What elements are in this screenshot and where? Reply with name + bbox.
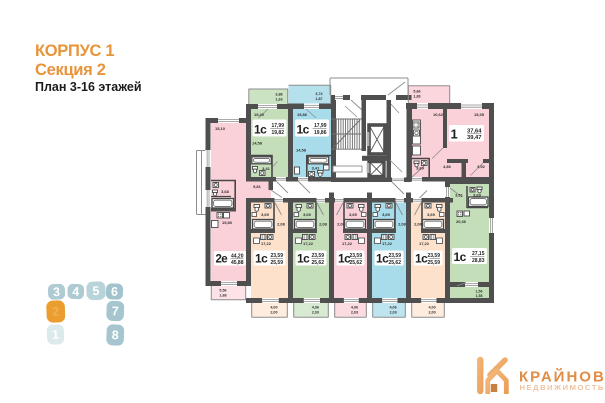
svg-text:3,69: 3,69 <box>416 166 425 171</box>
svg-text:17,22: 17,22 <box>419 241 430 246</box>
svg-text:3: 3 <box>53 285 61 299</box>
svg-text:3,74: 3,74 <box>315 92 323 96</box>
svg-text:2,08: 2,08 <box>398 222 407 227</box>
svg-text:17,22: 17,22 <box>382 241 393 246</box>
svg-text:2,03: 2,03 <box>312 310 319 314</box>
svg-text:План 3-16 этажей: План 3-16 этажей <box>35 80 142 94</box>
svg-text:25,59: 25,59 <box>427 260 440 266</box>
svg-text:15,10: 15,10 <box>215 126 226 131</box>
svg-text:1: 1 <box>451 127 458 142</box>
svg-text:8: 8 <box>112 328 119 342</box>
svg-text:14,58: 14,58 <box>252 141 263 146</box>
svg-text:19,86: 19,86 <box>297 112 308 117</box>
svg-text:Секция 2: Секция 2 <box>35 61 106 79</box>
svg-text:20,36: 20,36 <box>456 219 467 224</box>
svg-text:1с: 1с <box>254 123 267 137</box>
svg-text:3,69: 3,69 <box>382 212 391 217</box>
svg-text:1: 1 <box>52 328 59 342</box>
svg-text:44,20: 44,20 <box>231 253 244 259</box>
svg-text:3,41: 3,41 <box>312 166 321 171</box>
svg-text:1,63: 1,63 <box>275 97 282 101</box>
svg-text:5,56: 5,56 <box>219 289 226 293</box>
svg-text:5: 5 <box>92 284 99 298</box>
svg-text:19,80: 19,80 <box>222 220 233 225</box>
svg-text:4: 4 <box>72 285 79 299</box>
svg-text:19,86: 19,86 <box>314 130 327 136</box>
svg-text:5,66: 5,66 <box>413 90 420 94</box>
svg-text:КОРПУС 1: КОРПУС 1 <box>35 42 114 60</box>
svg-text:14,58: 14,58 <box>296 148 307 153</box>
svg-text:1,58: 1,58 <box>476 294 483 298</box>
svg-text:23,59: 23,59 <box>388 253 401 259</box>
svg-text:4,06: 4,06 <box>389 306 396 310</box>
svg-text:25,62: 25,62 <box>311 260 324 266</box>
svg-text:37,64: 37,64 <box>467 128 482 134</box>
svg-text:3,69: 3,69 <box>427 212 436 217</box>
svg-text:2,03: 2,03 <box>389 310 396 314</box>
svg-text:3,68: 3,68 <box>221 189 230 194</box>
svg-text:3,69: 3,69 <box>349 212 358 217</box>
svg-text:17,22: 17,22 <box>342 241 353 246</box>
svg-text:4,86: 4,86 <box>443 164 452 169</box>
svg-text:7: 7 <box>112 304 119 318</box>
svg-text:19,82: 19,82 <box>271 130 284 136</box>
svg-text:17,22: 17,22 <box>303 241 314 246</box>
svg-text:1,68: 1,68 <box>219 293 226 297</box>
svg-text:1с: 1с <box>255 252 268 266</box>
svg-text:3,69: 3,69 <box>261 212 270 217</box>
svg-text:1,87: 1,87 <box>315 97 322 101</box>
svg-text:19,20: 19,20 <box>254 112 265 117</box>
svg-text:39,47: 39,47 <box>467 135 482 141</box>
svg-text:2,00: 2,00 <box>428 310 435 314</box>
svg-text:10,62: 10,62 <box>433 112 444 117</box>
svg-text:25,62: 25,62 <box>388 260 401 266</box>
svg-text:2,08: 2,08 <box>414 222 423 227</box>
svg-text:2,03: 2,03 <box>351 310 358 314</box>
svg-text:1с: 1с <box>297 252 310 266</box>
svg-text:4,06: 4,06 <box>351 306 358 310</box>
svg-text:17,22: 17,22 <box>261 241 272 246</box>
svg-text:2: 2 <box>52 305 59 319</box>
svg-text:23,59: 23,59 <box>270 253 283 259</box>
svg-text:1,83: 1,83 <box>413 94 420 98</box>
svg-text:3,92: 3,92 <box>477 164 486 169</box>
svg-text:2,00: 2,00 <box>270 310 277 314</box>
svg-text:25,62: 25,62 <box>349 260 362 266</box>
svg-text:3,41: 3,41 <box>262 166 271 171</box>
svg-text:1с: 1с <box>297 123 310 137</box>
svg-text:1,56: 1,56 <box>476 289 483 293</box>
svg-text:28,83: 28,83 <box>472 258 485 264</box>
svg-text:5,81: 5,81 <box>253 184 262 189</box>
svg-text:3,69: 3,69 <box>303 212 312 217</box>
svg-text:3,69: 3,69 <box>473 193 482 198</box>
svg-text:3,51: 3,51 <box>455 193 464 198</box>
svg-text:3,88: 3,88 <box>275 93 282 97</box>
svg-text:15,35: 15,35 <box>474 112 485 117</box>
svg-text:23,59: 23,59 <box>311 253 324 259</box>
svg-text:23,59: 23,59 <box>349 253 362 259</box>
svg-text:17,99: 17,99 <box>314 123 327 129</box>
svg-text:1с: 1с <box>376 252 389 266</box>
svg-text:6: 6 <box>111 285 118 299</box>
svg-text:4,06: 4,06 <box>312 306 319 310</box>
svg-text:НЕДВИЖИМОСТЬ: НЕДВИЖИМОСТЬ <box>520 383 605 392</box>
svg-text:27,15: 27,15 <box>472 251 485 257</box>
svg-text:4,00: 4,00 <box>270 306 277 310</box>
svg-text:17,99: 17,99 <box>271 123 284 129</box>
svg-text:4,00: 4,00 <box>428 306 435 310</box>
svg-text:2,08: 2,08 <box>319 222 328 227</box>
svg-text:2,08: 2,08 <box>277 222 286 227</box>
svg-text:2е: 2е <box>216 254 228 266</box>
svg-text:45,88: 45,88 <box>231 260 244 266</box>
svg-text:25,59: 25,59 <box>270 260 283 266</box>
svg-text:1с: 1с <box>454 250 467 264</box>
svg-text:1с: 1с <box>415 252 428 266</box>
svg-text:23,59: 23,59 <box>427 253 440 259</box>
